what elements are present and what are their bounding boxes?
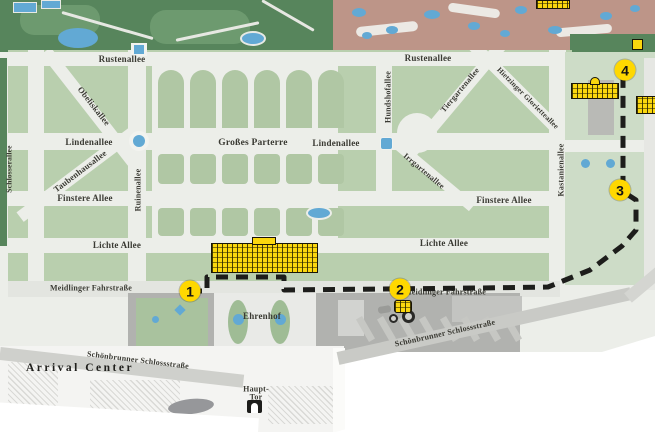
parterre-block bbox=[190, 70, 216, 128]
zoo-pond bbox=[352, 8, 366, 17]
label-tor: Tor bbox=[250, 393, 263, 402]
label-ruinenallee: Ruinenallee bbox=[134, 169, 143, 212]
schoenbrunn-park-map: RustenalleeRustenalleeObeliskalleeLinden… bbox=[0, 0, 655, 432]
parterre-block bbox=[254, 208, 280, 236]
label-schlosserallee: Schlosserallee bbox=[5, 145, 14, 192]
zoo-pond bbox=[500, 30, 510, 37]
carriage-icon bbox=[376, 298, 424, 326]
label-rustenallee-west: Rustenallee bbox=[99, 54, 146, 64]
route-marker-2[interactable]: 2 bbox=[390, 279, 411, 300]
parterre-block bbox=[222, 208, 248, 236]
parterre-block bbox=[286, 154, 312, 184]
zoo-pond bbox=[362, 32, 372, 39]
gloriette-icon-dome bbox=[590, 77, 600, 85]
gloriette-icon bbox=[571, 83, 619, 99]
label-lindenallee-west: Lindenallee bbox=[65, 137, 112, 147]
garden-east-path bbox=[565, 140, 655, 152]
label-lichte-allee-west: Lichte Allee bbox=[93, 240, 141, 250]
parterre-block bbox=[254, 154, 280, 184]
zoo-building-icon bbox=[536, 0, 570, 9]
parterre-block bbox=[158, 208, 184, 236]
pond bbox=[13, 2, 37, 13]
carriage-horse bbox=[377, 305, 391, 314]
label-lichte-allee-east: Lichte Allee bbox=[420, 238, 468, 248]
main-gate-arch bbox=[251, 403, 258, 413]
parterre-block bbox=[318, 154, 344, 184]
label-grosses-parterre: Großes Parterre bbox=[218, 138, 287, 148]
neptune-fountain bbox=[306, 206, 332, 220]
small-landmark-icon bbox=[632, 39, 643, 50]
main-gate-icon bbox=[247, 400, 262, 413]
label-ehrenhof: Ehrenhof bbox=[243, 311, 281, 321]
label-rustenallee-east: Rustenallee bbox=[405, 53, 452, 63]
route-marker-1[interactable]: 1 bbox=[180, 281, 201, 302]
palace-icon-gable bbox=[252, 237, 276, 245]
parterre-block bbox=[190, 154, 216, 184]
label-finstere-allee-east: Finstere Allee bbox=[476, 195, 531, 205]
parterre-block bbox=[190, 208, 216, 236]
label-hundshofallee: Hundshofallee bbox=[384, 71, 393, 123]
parterre-block bbox=[286, 70, 312, 128]
hietzing-building-icon bbox=[636, 96, 655, 114]
pond bbox=[58, 28, 98, 48]
zoo-pond bbox=[515, 6, 527, 14]
parterre-block bbox=[318, 70, 344, 128]
zoo-pond bbox=[468, 22, 480, 30]
carriage-body bbox=[394, 300, 412, 313]
parterre-block bbox=[254, 70, 280, 128]
label-meidlinger-fahrstrasse-east: Meidlinger Fahrstraße bbox=[404, 288, 486, 297]
road-east-edge bbox=[644, 58, 655, 290]
parterre-block bbox=[222, 154, 248, 184]
zoo-pond bbox=[386, 26, 398, 34]
parking-hatch bbox=[268, 386, 343, 424]
round-basin-water bbox=[133, 135, 145, 147]
parterre-block bbox=[158, 154, 184, 184]
fountain bbox=[606, 159, 615, 168]
path-west bbox=[28, 50, 44, 285]
parterre-block bbox=[158, 70, 184, 128]
route-marker-3[interactable]: 3 bbox=[610, 180, 631, 201]
kammergarten bbox=[136, 298, 208, 346]
stern-basin bbox=[380, 137, 393, 150]
label-kastanienallee: Kastanienallee bbox=[557, 143, 566, 196]
zoo-pond bbox=[548, 26, 562, 34]
label-finstere-allee-west: Finstere Allee bbox=[57, 193, 112, 203]
zoo-pond bbox=[600, 12, 612, 20]
parterre-block bbox=[222, 70, 248, 128]
carriage-wheel-small bbox=[389, 314, 398, 323]
zoo-pond bbox=[630, 5, 640, 12]
zoo-pond bbox=[424, 10, 440, 19]
fountain bbox=[581, 159, 590, 168]
stern-junction bbox=[397, 113, 437, 153]
label-lindenallee-center: Lindenallee bbox=[312, 138, 359, 148]
label-meidlinger-fahrstrasse: Meidlinger Fahrstraße bbox=[50, 284, 132, 293]
palace-icon bbox=[211, 243, 318, 273]
pond bbox=[41, 0, 61, 9]
pond-basin-water bbox=[134, 45, 144, 54]
route-marker-4[interactable]: 4 bbox=[615, 60, 636, 81]
kammergarten-fountain bbox=[152, 316, 159, 323]
label-arrival-center: Arrival Center bbox=[26, 362, 134, 374]
forest-pond bbox=[240, 31, 266, 46]
